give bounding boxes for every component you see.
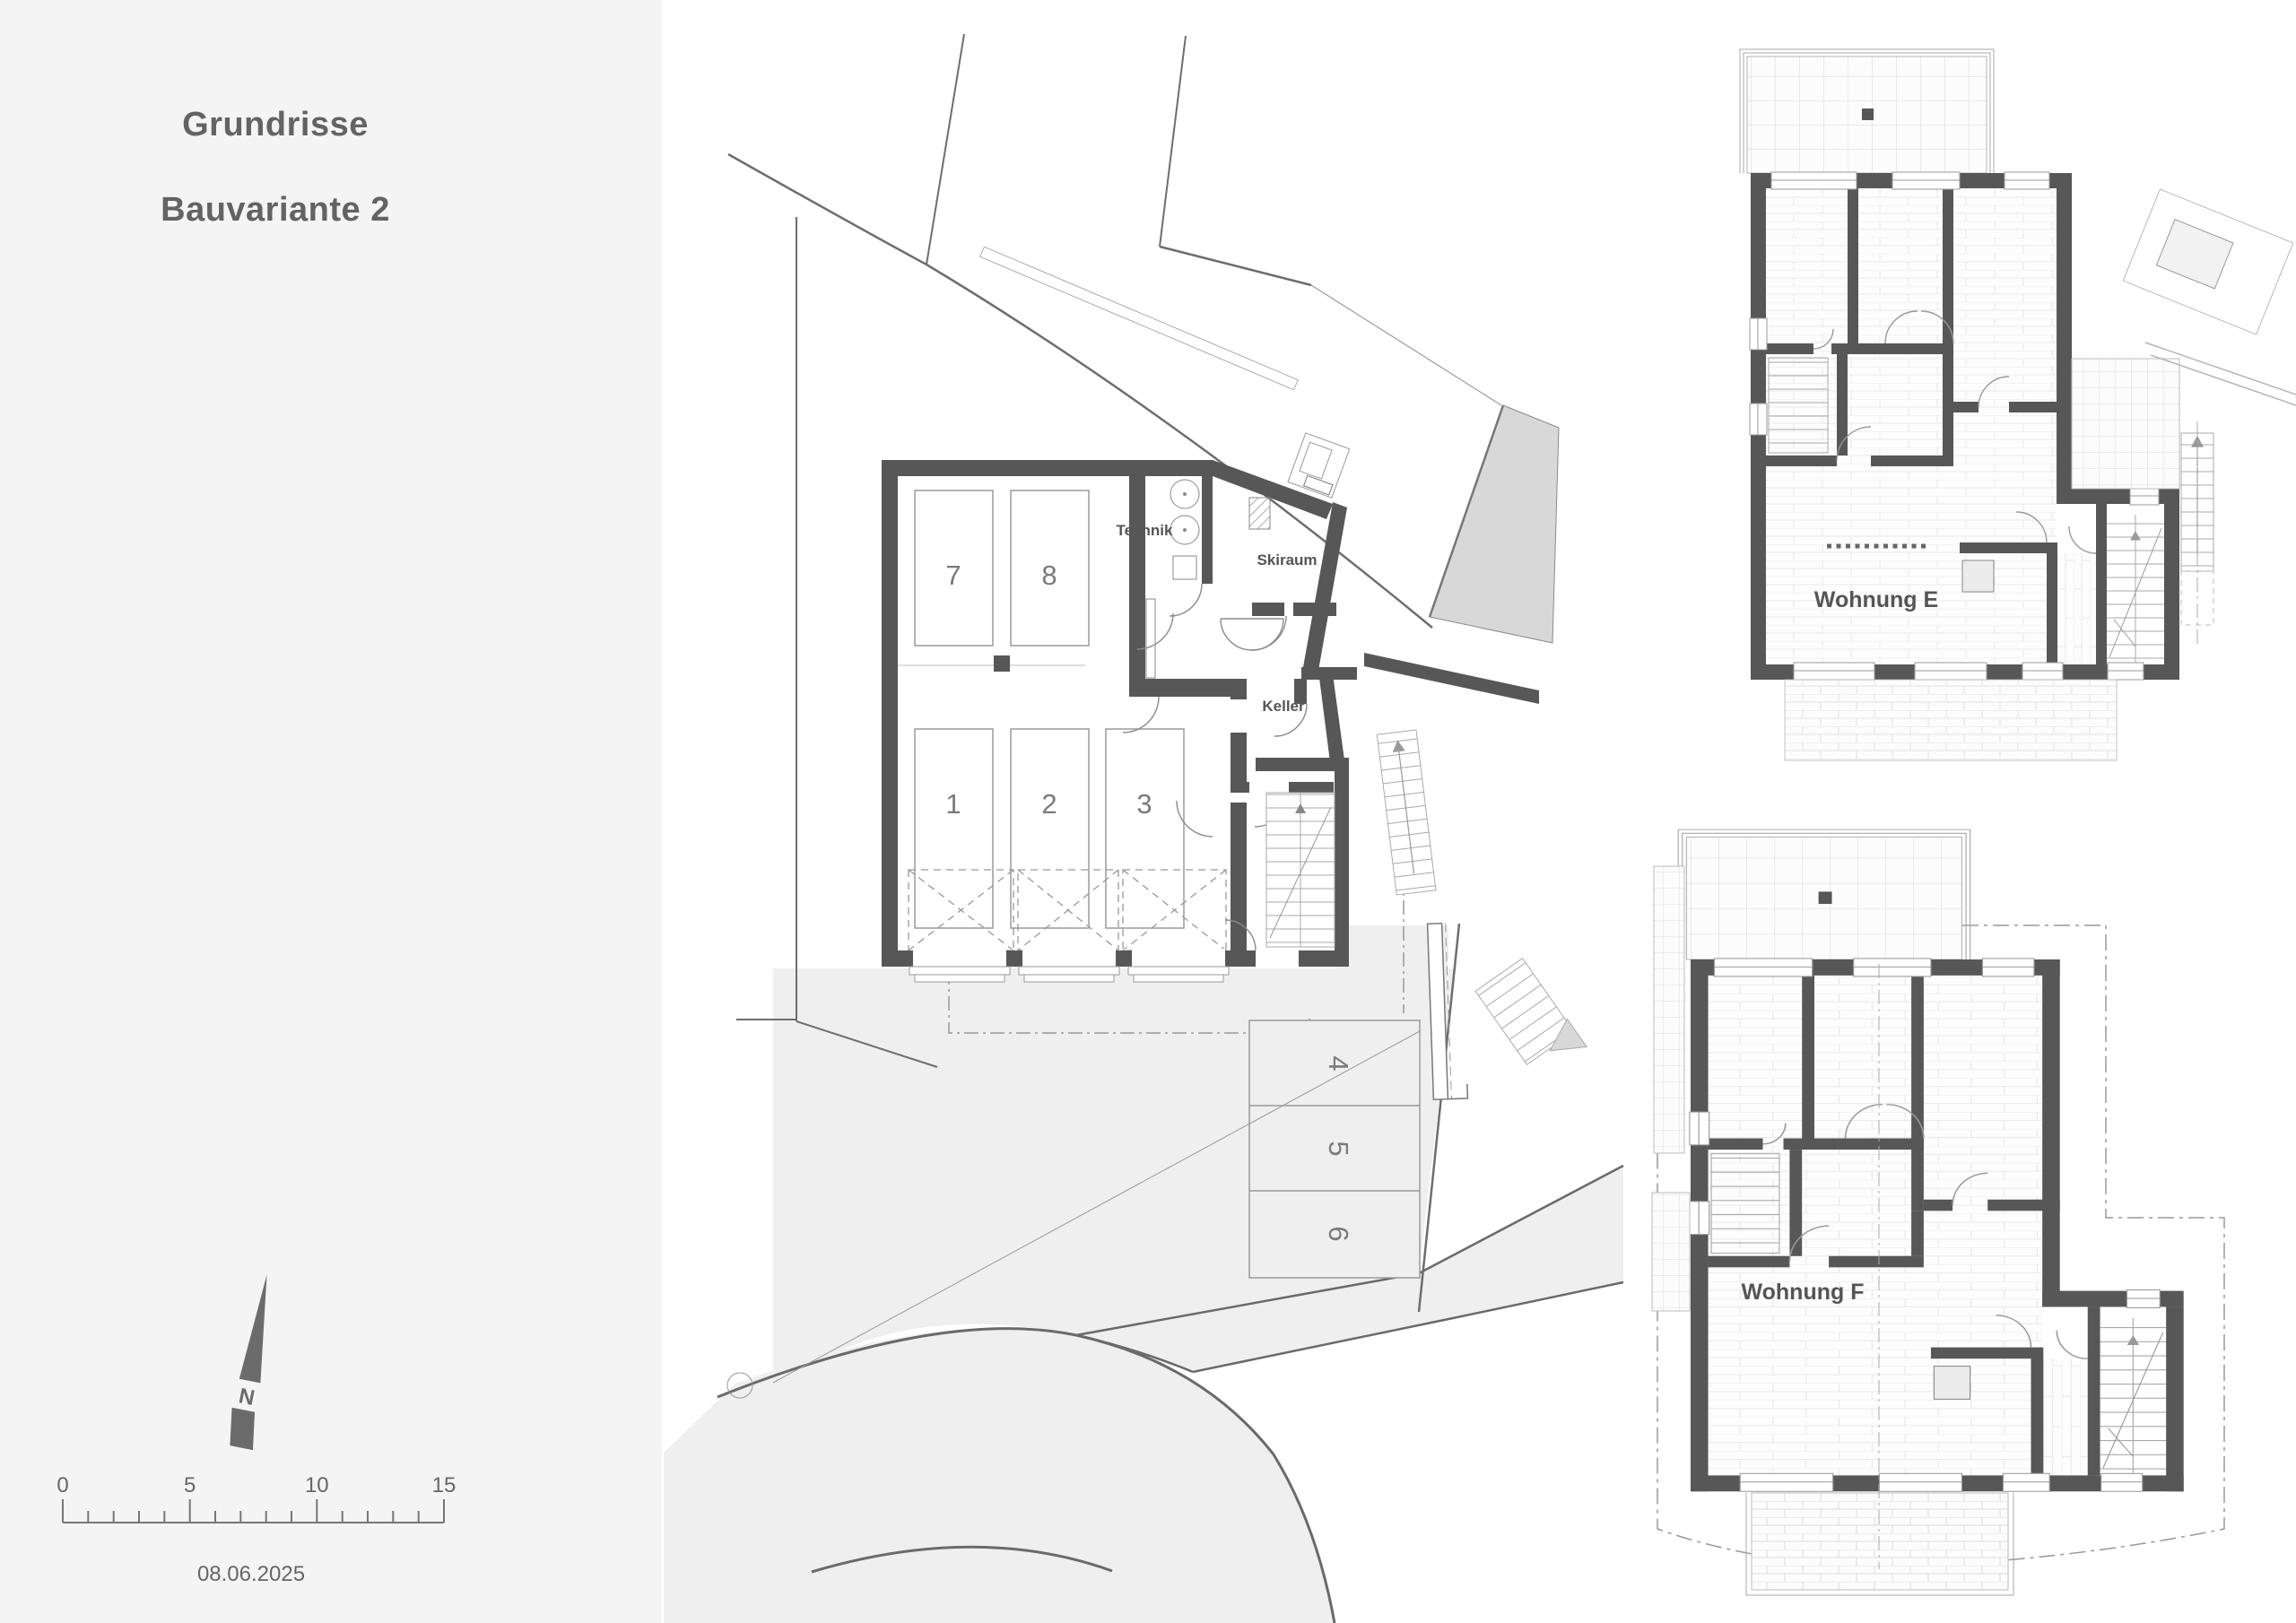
retaining-wall	[980, 247, 1298, 390]
parking-stall-2: 2	[1041, 788, 1057, 820]
shaft-hatch	[1249, 498, 1270, 529]
door-gap	[1231, 699, 1247, 733]
parking-stall-4: 4	[1323, 1055, 1354, 1071]
parking-stall-3: 3	[1136, 788, 1152, 820]
parking-stall-7: 7	[945, 560, 961, 591]
plan-sheet: Technik Skiraum Keller 7 8 1 2 3 4 5 6	[0, 0, 2296, 1623]
room-label-technik: Technik	[1117, 522, 1174, 539]
parking-stall-8: 8	[1041, 560, 1057, 591]
title-panel: Grundrisse Bauvariante 2 N 0	[0, 0, 662, 1623]
apartment-label-f: Wohnung F	[1742, 1280, 1865, 1305]
neighbor-roof	[2123, 189, 2293, 334]
terrace	[1785, 680, 2117, 760]
site-stairs-east	[1377, 730, 1436, 895]
scale-tick-10: 10	[305, 1473, 329, 1497]
door-gap	[1256, 950, 1299, 967]
technik-equipment	[1170, 480, 1199, 579]
terrace-stairs	[2181, 421, 2213, 646]
north-label: N	[237, 1384, 257, 1410]
parking-stall-6: 6	[1323, 1226, 1354, 1241]
apartment-plan-f: Wohnung F	[1652, 829, 2224, 1595]
scale-tick-0: 0	[57, 1473, 68, 1497]
sheet-title-line1: Grundrisse	[0, 106, 551, 144]
paved-areas	[664, 925, 1623, 1623]
site-stairs-southeast	[1475, 958, 1587, 1081]
apartment-plan-e: Wohnung E	[1740, 49, 2296, 760]
terrace	[1746, 1493, 2013, 1595]
garage-entry	[1288, 433, 1350, 498]
sheet-title-line2: Bauvariante 2	[0, 191, 551, 230]
balcony-strip	[1652, 1193, 1690, 1311]
scale-tick-15: 15	[432, 1473, 457, 1497]
sheet-title: Grundrisse Bauvariante 2	[0, 106, 551, 230]
ramp	[1430, 405, 1559, 643]
garage-stairs	[1266, 793, 1335, 947]
scale-tick-5: 5	[184, 1473, 196, 1497]
apartment-label-e: Wohnung E	[1814, 587, 1938, 612]
date-label: 08.06.2025	[0, 1562, 502, 1587]
balcony-strip	[1654, 866, 1684, 1153]
room-label-keller: Keller	[1262, 698, 1305, 715]
door-leaf	[1146, 599, 1155, 678]
garage-doors	[909, 949, 1229, 982]
north-arrow-icon: N	[143, 1263, 323, 1455]
parking-stall-1: 1	[945, 788, 961, 820]
site-wall	[1364, 653, 1539, 704]
scale-bar: 0 5 10 15	[49, 1467, 462, 1539]
room-label-skiraum: Skiraum	[1257, 551, 1317, 568]
garage-plan: Technik Skiraum Keller 7 8 1 2 3	[882, 433, 1357, 982]
parking-stall-5: 5	[1323, 1141, 1354, 1156]
